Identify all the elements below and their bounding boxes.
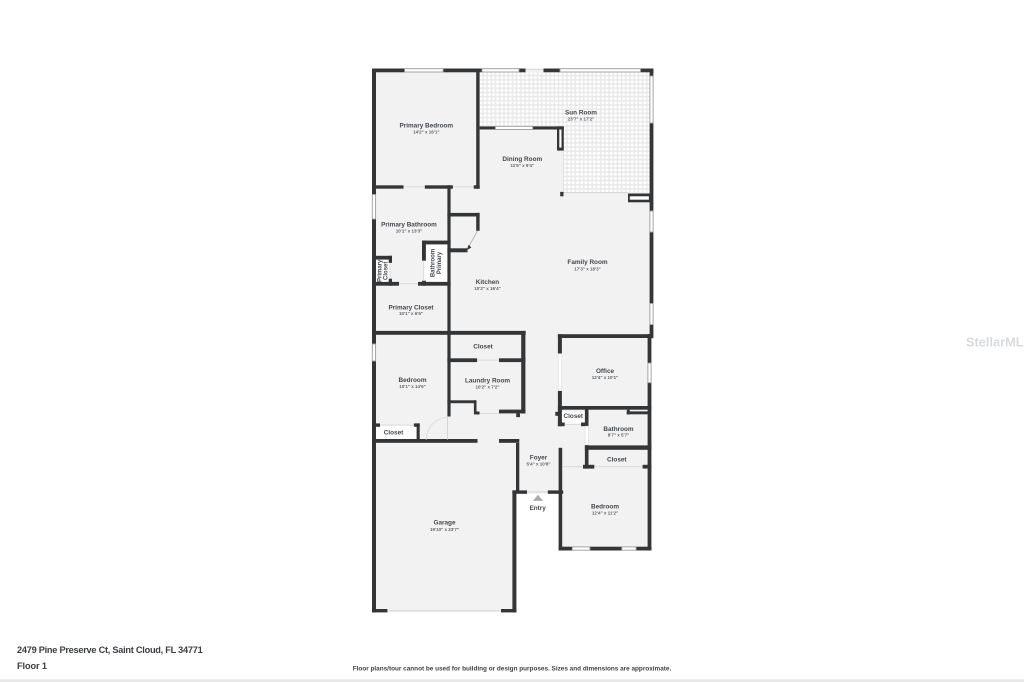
svg-text:10'1" x 6'6": 10'1" x 6'6": [399, 311, 423, 316]
svg-text:10'1" x 13'3": 10'1" x 13'3": [396, 229, 422, 234]
svg-text:23'7" x 17'2": 23'7" x 17'2": [568, 117, 594, 122]
svg-text:Kitchen: Kitchen: [476, 279, 500, 286]
svg-text:Closet: Closet: [384, 430, 404, 437]
svg-text:19'10" x 23'7": 19'10" x 23'7": [430, 527, 459, 532]
svg-text:14'2" x 16'1": 14'2" x 16'1": [413, 129, 439, 134]
svg-text:Closet: Closet: [384, 262, 390, 280]
svg-text:2479 Pine Preserve Ct, Saint C: 2479 Pine Preserve Ct, Saint Cloud, FL 3…: [17, 645, 203, 655]
svg-text:Family Room: Family Room: [567, 259, 607, 266]
svg-text:Bedroom: Bedroom: [398, 377, 426, 384]
svg-text:Floor 1: Floor 1: [17, 661, 47, 671]
svg-text:Entry: Entry: [530, 505, 547, 512]
svg-text:Bathroom: Bathroom: [431, 249, 437, 277]
svg-text:17'3" x 18'3": 17'3" x 18'3": [574, 266, 600, 271]
svg-text:Closet: Closet: [473, 344, 493, 351]
svg-text:12'4" x 10'1": 12'4" x 10'1": [592, 375, 618, 380]
svg-text:10'2" x 16'4": 10'2" x 16'4": [474, 286, 500, 291]
svg-text:Primary: Primary: [377, 259, 383, 282]
svg-text:Dining Room: Dining Room: [502, 156, 542, 163]
svg-text:11'5" x 9'4": 11'5" x 9'4": [510, 163, 534, 168]
svg-text:Sun Room: Sun Room: [565, 110, 597, 117]
svg-text:StellarMLS: StellarMLS: [966, 334, 1024, 349]
svg-text:8'7" x 5'7": 8'7" x 5'7": [608, 433, 629, 438]
svg-text:Floor plans/tour cannot be use: Floor plans/tour cannot be used for buil…: [353, 666, 672, 673]
svg-text:Primary: Primary: [437, 251, 443, 274]
svg-text:Laundry Room: Laundry Room: [465, 378, 510, 385]
svg-text:5'4" x 10'8": 5'4" x 10'8": [527, 461, 551, 466]
svg-text:Garage: Garage: [433, 520, 455, 527]
svg-text:Primary Bedroom: Primary Bedroom: [399, 122, 453, 129]
svg-text:10'2" x 7'2": 10'2" x 7'2": [476, 385, 500, 390]
svg-text:Closet: Closet: [564, 413, 584, 420]
svg-text:10'1" x 14'6": 10'1" x 14'6": [399, 384, 425, 389]
svg-text:12'4" x 11'2": 12'4" x 11'2": [592, 510, 618, 515]
svg-text:Closet: Closet: [607, 456, 627, 463]
